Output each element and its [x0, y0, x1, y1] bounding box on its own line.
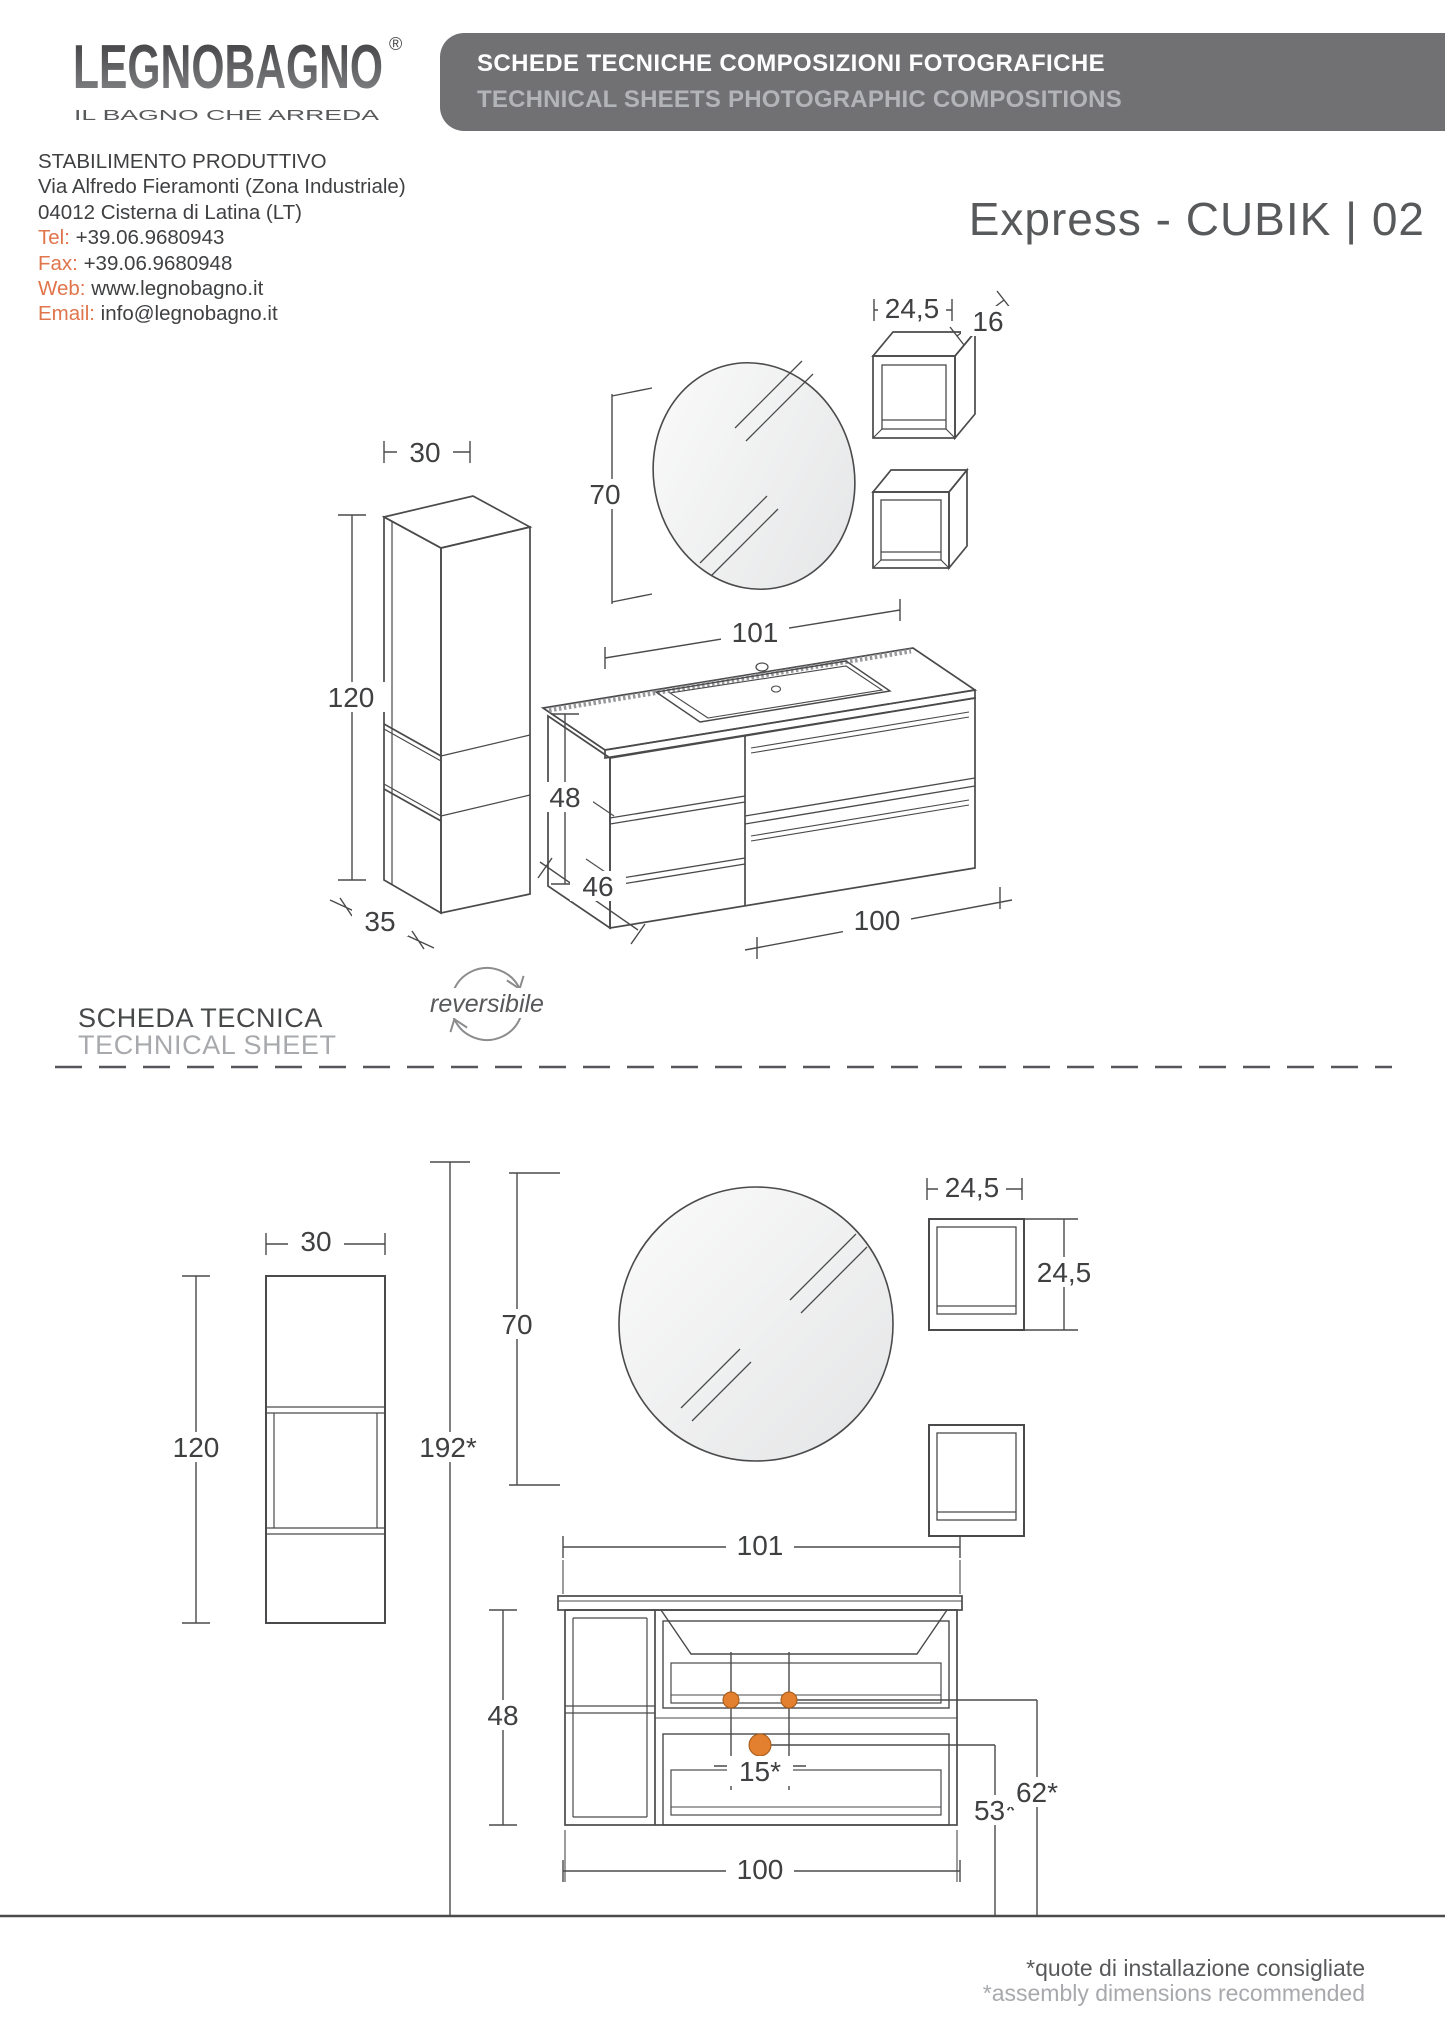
dim-column-depth: 35: [364, 906, 395, 937]
dim-drain-spacing: 15*: [739, 1756, 781, 1787]
vanity-dim-lines: [538, 599, 1012, 959]
dim-connection-height: 62*: [1016, 1777, 1058, 1808]
dim-vanity-top-width: 101: [732, 617, 779, 648]
plumbing-connection-dots: [723, 1692, 797, 1756]
dim-column-width: 30: [409, 437, 440, 468]
dim-cube-depth: 16: [972, 306, 1003, 337]
dim-front-cube-height: 24,5: [1037, 1257, 1092, 1288]
dim-front-cube-width: 24,5: [945, 1172, 1000, 1203]
dim-vanity-depth: 46: [582, 871, 613, 902]
technical-sheet-page: LEGNOBAGNO ® IL BAGNO CHE ARREDA SCHEDE …: [0, 0, 1445, 2043]
dim-cube-width: 24,5: [885, 293, 940, 324]
dim-front-vanity-top-width: 101: [737, 1530, 784, 1561]
front-view-drawing: [0, 1162, 1445, 1916]
dim-front-vanity-body-width: 100: [737, 1854, 784, 1885]
column-front-dim-lines: [182, 1233, 385, 1623]
technical-drawings: reversibile 30 120 35 70 24,5 16 101 48 …: [0, 0, 1445, 2043]
dim-vanity-body-width: 100: [854, 905, 901, 936]
wall-cube-top-front: [929, 1219, 1024, 1330]
perspective-view-drawing: reversibile: [55, 291, 1392, 1067]
dim-front-column-height: 120: [173, 1432, 220, 1463]
reversible-label: reversibile: [430, 990, 544, 1018]
tall-column-front: [266, 1276, 385, 1623]
dim-front-mirror-height: 70: [501, 1309, 532, 1340]
dim-total-height: 192*: [419, 1432, 477, 1463]
dim-column-height: 120: [328, 682, 375, 713]
wall-cube-bottom-perspective: [873, 470, 967, 568]
round-mirror-front: [619, 1187, 893, 1461]
wall-cube-top-perspective: [873, 332, 975, 438]
perspective-view-labels: 30 120 35 70 24,5 16 101 48 46 100: [317, 293, 1015, 937]
dim-front-column-width: 30: [300, 1226, 331, 1257]
tall-column-perspective: [384, 496, 530, 913]
wall-cube-bottom-front: [929, 1425, 1024, 1536]
total-height-dim-line: [430, 1162, 470, 1916]
dim-mirror-height: 70: [589, 479, 620, 510]
dim-front-vanity-height: 48: [487, 1700, 518, 1731]
round-mirror-perspective: [629, 341, 878, 611]
dim-vanity-height: 48: [549, 782, 580, 813]
